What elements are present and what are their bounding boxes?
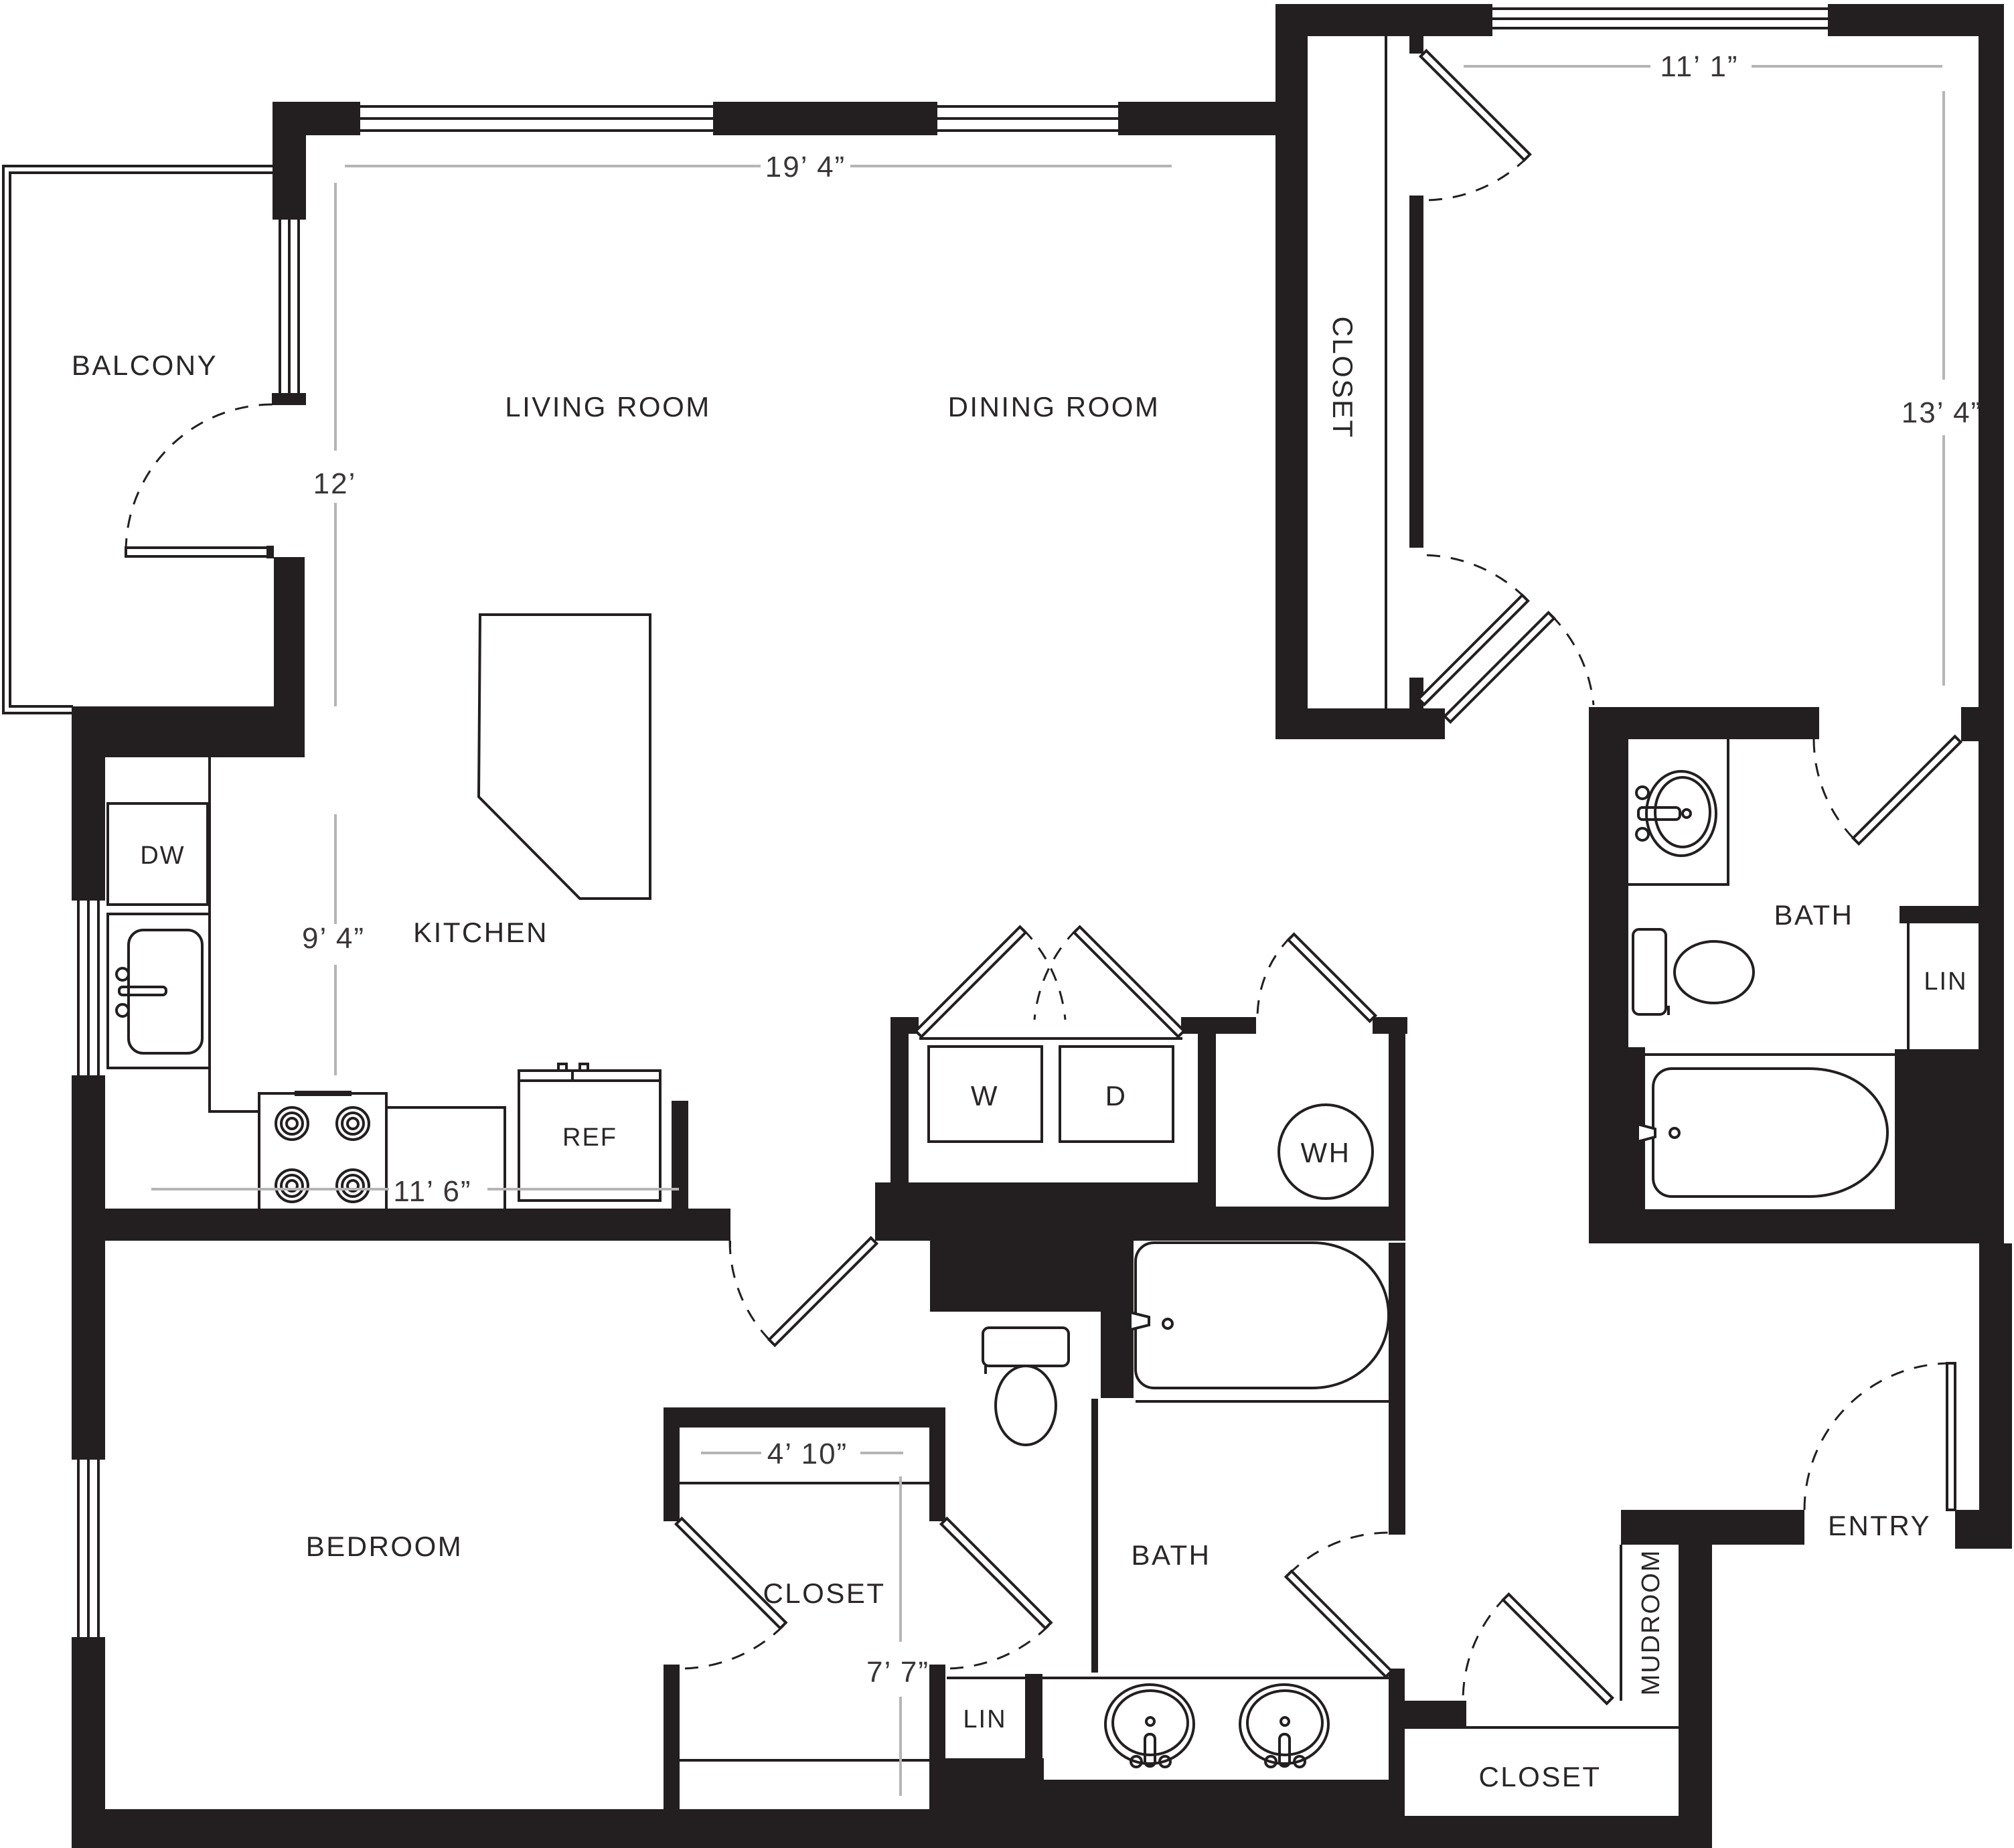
svg-text:LIN: LIN	[1924, 968, 1967, 996]
svg-text:REF: REF	[562, 1124, 617, 1152]
svg-text:13’ 4”: 13’ 4”	[1902, 396, 1982, 429]
svg-text:19’ 4”: 19’ 4”	[765, 151, 846, 183]
svg-text:W: W	[971, 1080, 999, 1111]
svg-text:WH: WH	[1301, 1137, 1351, 1168]
svg-text:BALCONY: BALCONY	[72, 350, 218, 381]
svg-text:11’ 1”: 11’ 1”	[1660, 50, 1738, 83]
svg-text:CLOSET: CLOSET	[1478, 1761, 1601, 1792]
svg-text:DINING ROOM: DINING ROOM	[948, 391, 1160, 422]
svg-text:ENTRY: ENTRY	[1828, 1510, 1931, 1541]
svg-text:LIN: LIN	[963, 1705, 1006, 1734]
svg-text:BATH: BATH	[1774, 899, 1854, 931]
svg-text:12’: 12’	[313, 467, 357, 500]
svg-text:LIVING ROOM: LIVING ROOM	[505, 391, 711, 422]
svg-text:KITCHEN: KITCHEN	[413, 917, 548, 948]
svg-text:7’ 7”: 7’ 7”	[866, 1656, 929, 1689]
svg-text:4’ 10”: 4’ 10”	[767, 1438, 848, 1470]
svg-text:CLOSET: CLOSET	[763, 1577, 885, 1609]
svg-text:BATH: BATH	[1132, 1539, 1211, 1571]
svg-text:9’ 4”: 9’ 4”	[302, 922, 365, 955]
svg-text:D: D	[1105, 1080, 1128, 1111]
svg-text:11’ 6”: 11’ 6”	[393, 1175, 471, 1208]
svg-text:MUDROOM: MUDROOM	[1637, 1549, 1665, 1696]
svg-text:DW: DW	[140, 842, 185, 870]
svg-text:CLOSET: CLOSET	[1327, 316, 1359, 439]
svg-text:BEDROOM: BEDROOM	[306, 1531, 463, 1562]
